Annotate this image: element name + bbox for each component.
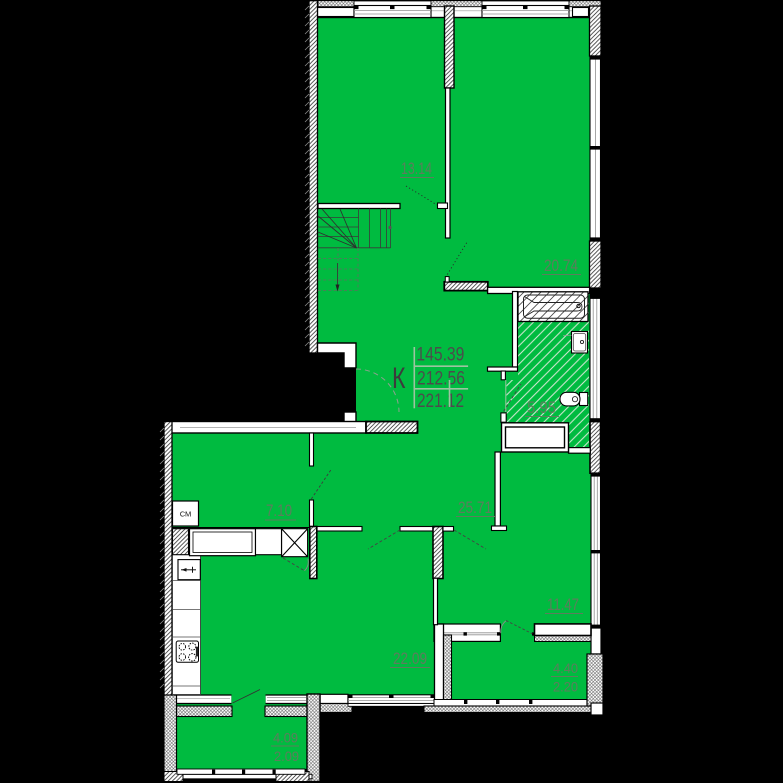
svg-text:212.56: 212.56 [417,369,465,390]
svg-text:221.12: 221.12 [417,391,464,412]
svg-text:5.95: 5.95 [527,398,556,417]
svg-text:20.74: 20.74 [544,256,578,275]
svg-text:4.09: 4.09 [273,730,298,746]
svg-text:145.39: 145.39 [416,345,464,366]
svg-text:11.47: 11.47 [547,595,579,614]
svg-text:13.14: 13.14 [401,159,432,178]
svg-text:7.10: 7.10 [266,501,292,520]
svg-text:2.09: 2.09 [274,748,299,764]
svg-text:4.40: 4.40 [553,660,578,676]
svg-text:25.71: 25.71 [458,498,492,517]
svg-text:22.09: 22.09 [393,649,427,668]
svg-text:2.20: 2.20 [553,679,578,695]
svg-text:К: К [392,362,406,395]
svg-text:СМ: СМ [180,510,192,519]
